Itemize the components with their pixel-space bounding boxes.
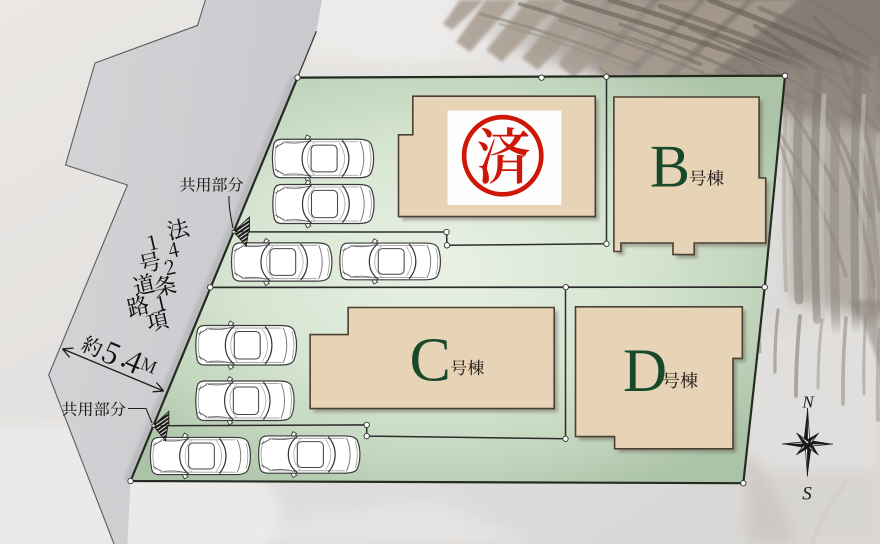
svg-text:N: N: [801, 393, 815, 412]
svg-text:B: B: [650, 134, 690, 200]
svg-text:D: D: [623, 338, 667, 405]
svg-text:S: S: [802, 484, 812, 505]
svg-text:C: C: [410, 326, 451, 394]
